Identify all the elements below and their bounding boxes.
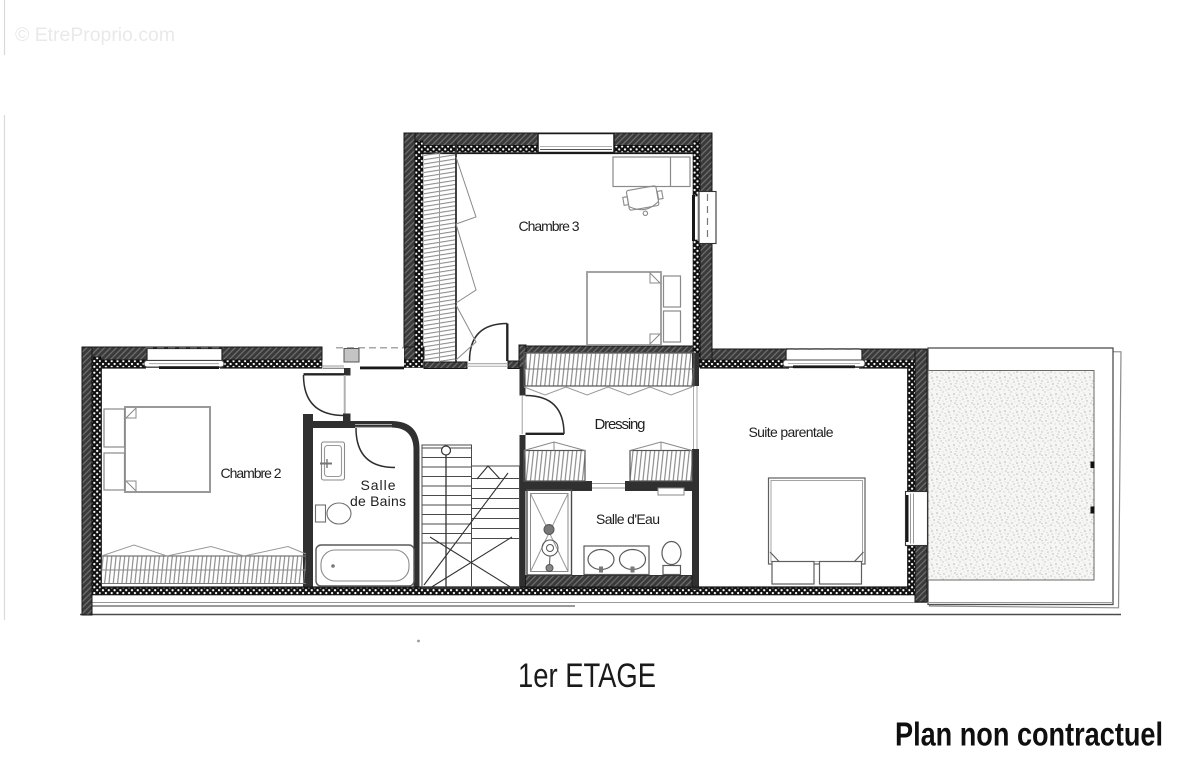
svg-text:Plan non contractuel: Plan non contractuel [895,716,1163,753]
svg-text:1er ETAGE: 1er ETAGE [518,657,656,695]
svg-text:Chambre 2: Chambre 2 [221,465,282,481]
svg-text:© EtreProprio.com: © EtreProprio.com [15,25,175,46]
svg-text:Suite parentale: Suite parentale [749,424,834,440]
svg-text:de Bains: de Bains [350,493,406,509]
svg-text:Dressing: Dressing [595,416,646,433]
svg-text:Salle d'Eau: Salle d'Eau [596,511,660,527]
svg-text:Chambre 3: Chambre 3 [519,218,580,234]
svg-text:Salle: Salle [361,477,396,493]
